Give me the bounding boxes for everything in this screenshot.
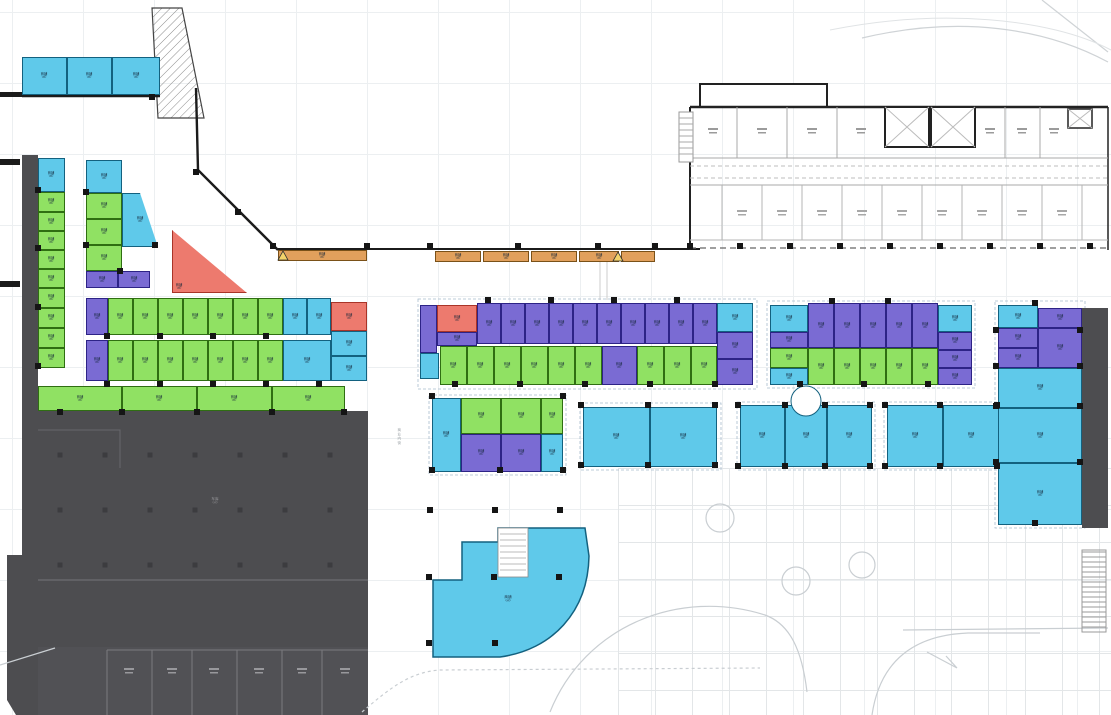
warning-triangle-icon bbox=[278, 251, 623, 261]
parking-label-line2: (㎡) bbox=[182, 501, 248, 504]
column-dots bbox=[35, 94, 1093, 646]
room-marks bbox=[124, 128, 1067, 674]
parking-label: 车库 (㎡) bbox=[160, 498, 270, 508]
quarter-unit-label: 商铺 (㎡) bbox=[468, 596, 548, 606]
stair-notch bbox=[498, 528, 528, 577]
floor-plan: 商铺(㎡)商铺(㎡)商铺(㎡)商铺(㎡)商铺(㎡)商铺(㎡)商铺(㎡)商铺(㎡)… bbox=[0, 0, 1111, 715]
overlay-layer bbox=[0, 0, 1111, 715]
street-label: 商业内街 bbox=[396, 428, 401, 445]
quarter-label-line2: (㎡) bbox=[484, 599, 532, 602]
concave-notch bbox=[791, 386, 821, 416]
